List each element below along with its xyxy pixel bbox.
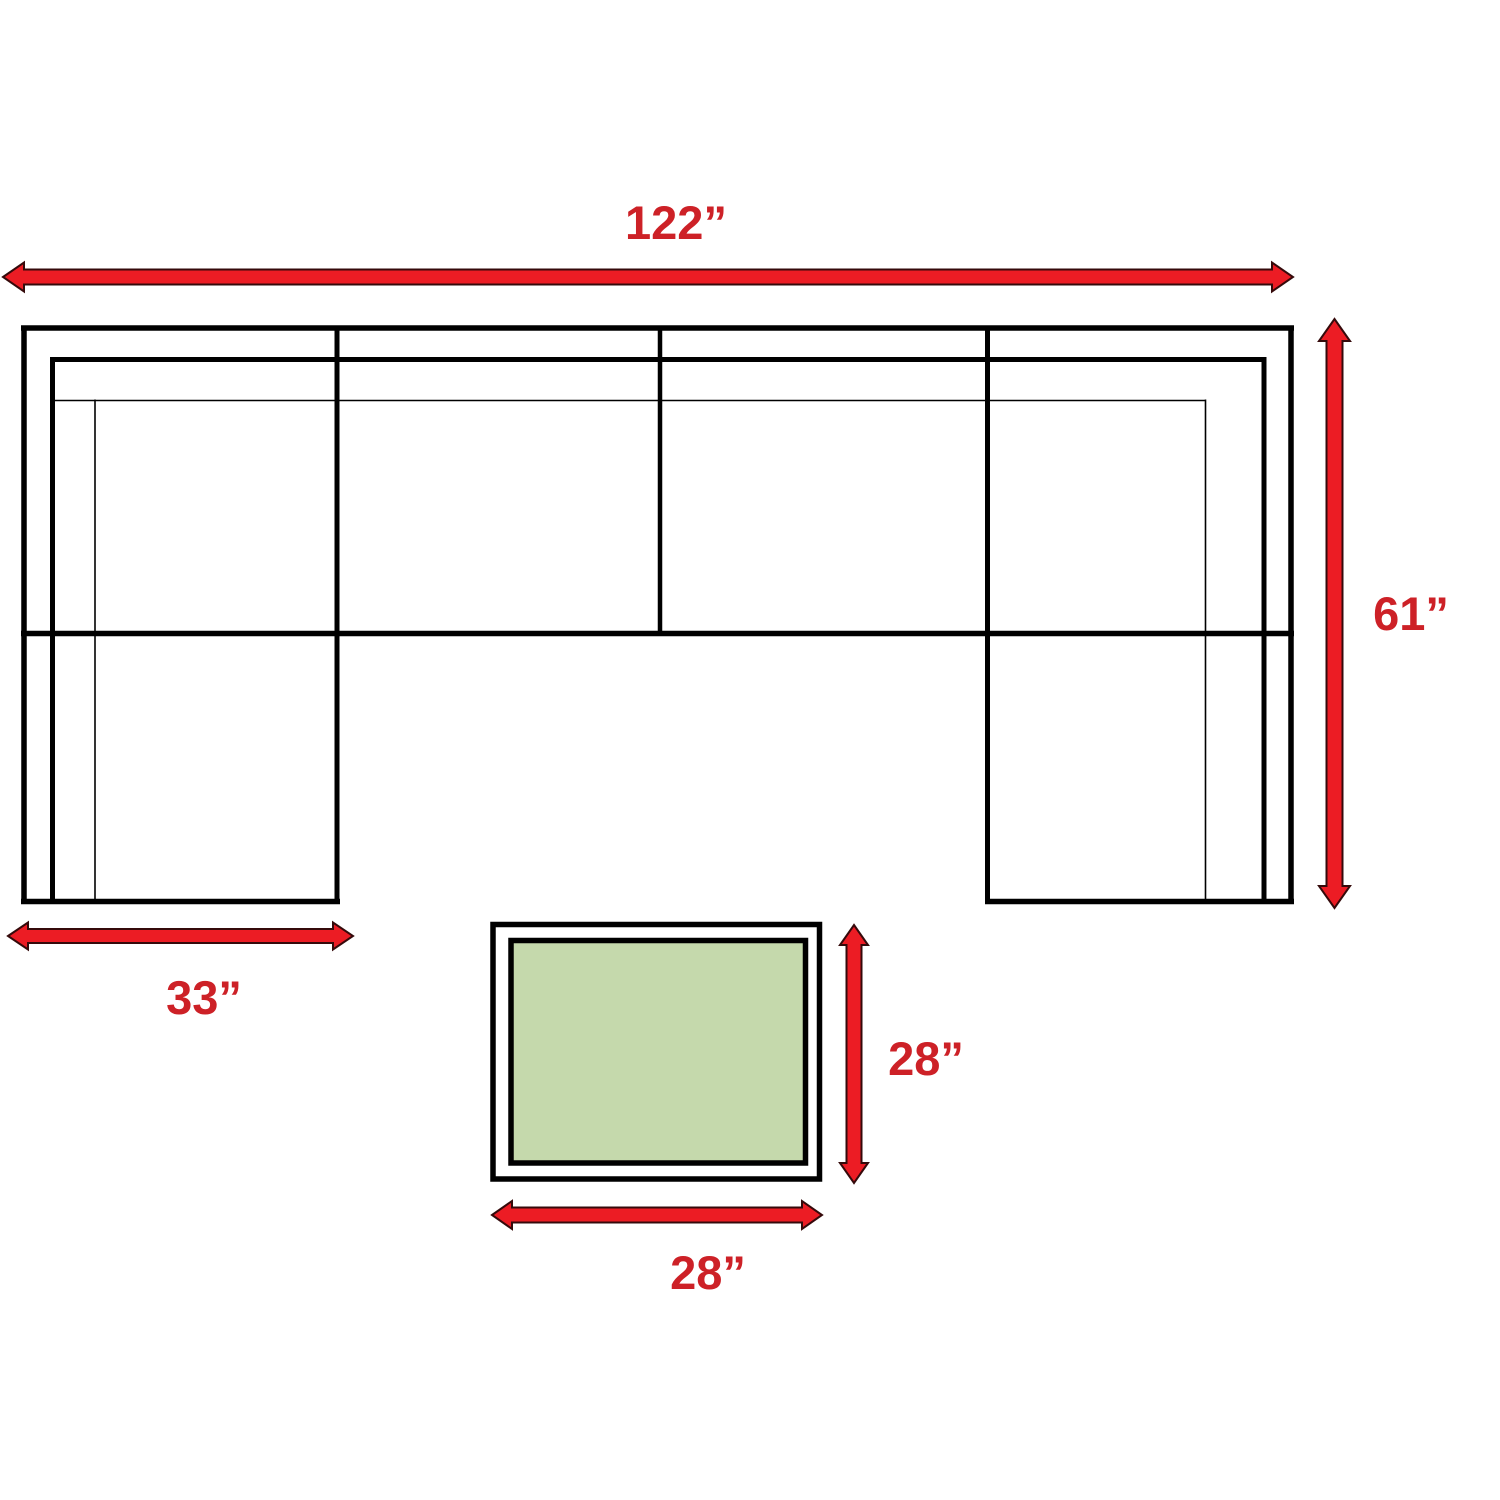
svg-text:33”: 33” bbox=[166, 971, 242, 1024]
svg-text:122”: 122” bbox=[625, 196, 727, 249]
svg-text:28”: 28” bbox=[670, 1246, 746, 1299]
svg-text:28”: 28” bbox=[888, 1032, 964, 1085]
svg-text:61”: 61” bbox=[1373, 587, 1449, 640]
